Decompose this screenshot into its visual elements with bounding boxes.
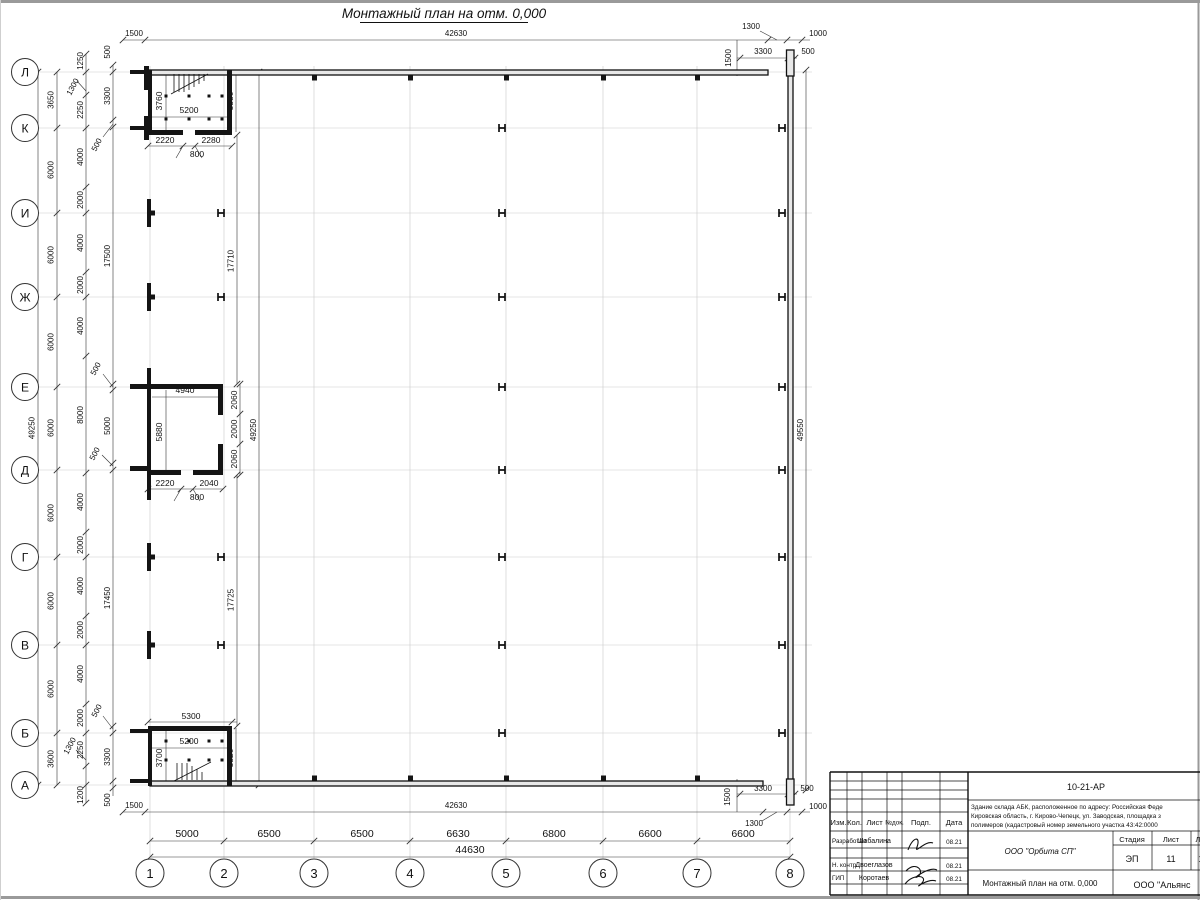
dim-label: 17710	[227, 249, 236, 272]
dim-label: 500	[103, 793, 112, 807]
dim-label: 6500	[350, 828, 374, 840]
dim-label: 2000	[229, 419, 239, 438]
page-title: Монтажный план на отм. 0,000	[342, 6, 547, 21]
sheet-title: Монтажный план на отм. 0,000	[342, 6, 547, 23]
axis-label: 4	[406, 866, 413, 881]
dim-label: 4000	[76, 577, 85, 595]
tb-date: 08.21	[946, 839, 962, 846]
dim-label: 1500	[724, 49, 733, 67]
dim-label: 1200	[76, 786, 85, 804]
axis-label: 6	[599, 866, 606, 881]
tb-role: Н. контр.	[832, 862, 858, 869]
dim-label: 4000	[76, 234, 85, 252]
dim-label: 6000	[47, 419, 56, 437]
dim-label: 2060	[229, 449, 239, 468]
axis-col: 5	[492, 859, 520, 887]
dim-label: 800	[190, 492, 204, 502]
axis-row: В	[12, 632, 39, 659]
axis-label: Л	[21, 66, 29, 80]
axis-row: А	[12, 772, 39, 799]
dim-label: 3300	[103, 748, 112, 766]
axis-row: Д	[12, 457, 39, 484]
dim-label: 17725	[227, 588, 236, 611]
dim-label: 1000	[809, 802, 827, 811]
tb-col-header: Изм.	[830, 818, 846, 827]
axis-label: 7	[693, 866, 700, 881]
tb-col-header: №док.	[885, 820, 904, 827]
dim-label: 3700	[154, 748, 164, 767]
dim-label: 2000	[76, 536, 85, 554]
wall-right	[788, 70, 793, 781]
axis-col: 7	[683, 859, 711, 887]
stage-header: Стадия	[1119, 835, 1145, 844]
dim-label: 2000	[76, 709, 85, 727]
dim-label: 5000	[103, 417, 112, 435]
dim-label: 6000	[47, 333, 56, 351]
dim-label: 500	[800, 784, 814, 793]
dim-label: 17450	[103, 586, 112, 609]
axis-col: 2	[210, 859, 238, 887]
axis-label: 2	[220, 866, 227, 881]
dim-label: 1500	[125, 801, 143, 810]
axis-label: А	[21, 779, 29, 793]
dim-label: 3300	[754, 47, 772, 56]
object-description-line: полимеров (кадастровый номер земельного …	[971, 821, 1158, 829]
object-description-line: Кировская область, г. Кирово-Чепецк, ул.…	[971, 812, 1161, 820]
wall-top	[145, 70, 768, 75]
axis-col: 4	[396, 859, 424, 887]
drawing-sheet: Монтажный план на отм. 0,000	[0, 0, 1200, 900]
axis-label: Ж	[19, 291, 30, 305]
dim-label: 17500	[103, 244, 112, 267]
wall-bottom	[150, 781, 763, 786]
sheet-header: Лист	[1163, 835, 1180, 844]
dim-label: 3760	[154, 91, 164, 110]
axis-col: 3	[300, 859, 328, 887]
dim-label: 44630	[455, 844, 484, 856]
dim-label: 4000	[76, 493, 85, 511]
axis-label: 5	[502, 866, 509, 881]
dim-label: 1300	[742, 22, 760, 31]
dim-label: 3650	[47, 91, 56, 109]
axis-label: 3	[310, 866, 317, 881]
dim-label: 6500	[257, 828, 281, 840]
dim-label: 6000	[47, 161, 56, 179]
dim-label: 1250	[76, 52, 85, 70]
dim-label: 6000	[47, 592, 56, 610]
corner-column-bottom-right	[787, 779, 795, 805]
dim-label: 6800	[542, 828, 566, 840]
axis-row: Г	[12, 544, 39, 571]
dim-label: 2000	[76, 621, 85, 639]
dim-label: 3300	[103, 87, 112, 105]
dim-label: 1000	[809, 29, 827, 38]
dim-label: 1300	[745, 819, 763, 828]
dim-label: 6600	[638, 828, 662, 840]
dim-label: 3600	[47, 750, 56, 768]
tb-col-header: Лист	[866, 818, 883, 827]
axis-label: В	[21, 639, 29, 653]
dim-label: 5200	[180, 105, 199, 115]
dim-label: 5880	[154, 422, 164, 441]
drawing-title: Монтажный план на отм. 0,000	[983, 879, 1098, 888]
dim-label: 6630	[446, 828, 470, 840]
dim-label: 4000	[76, 665, 85, 683]
tb-name: Коротаев	[859, 875, 890, 882]
dim-label: 8000	[76, 406, 85, 424]
dim-label: 42630	[445, 29, 468, 38]
plan-canvas: Монтажный план на отм. 0,000	[0, 0, 1200, 900]
dim-label: 2000	[76, 191, 85, 209]
stage-value: ЭП	[1126, 854, 1139, 864]
axis-row: К	[12, 115, 39, 142]
axis-label: 1	[146, 866, 153, 881]
dim-label: 49550	[796, 418, 805, 441]
tb-date: 08.21	[946, 876, 962, 883]
tb-date: 08.21	[946, 863, 962, 870]
dim-label: 500	[103, 45, 112, 59]
dim-label: 5300	[182, 711, 201, 721]
dim-label: 42630	[445, 801, 468, 810]
dim-label: 1500	[125, 29, 143, 38]
dim-label: 5000	[175, 828, 199, 840]
dim-label: 2250	[76, 741, 85, 759]
tb-role: ГИП	[832, 875, 845, 882]
axis-col: 8	[776, 859, 804, 887]
axis-row: Е	[12, 374, 39, 401]
axis-col: 6	[589, 859, 617, 887]
dim-label: 6000	[47, 504, 56, 522]
axis-label: 8	[786, 866, 793, 881]
tb-name: Шабалина	[857, 837, 891, 845]
dim-label: 2250	[76, 101, 85, 119]
dim-label: 800	[190, 149, 204, 159]
sheet-value: 11	[1166, 854, 1175, 864]
axis-label: Е	[21, 381, 29, 395]
axis-label: И	[21, 207, 30, 221]
dim-label: 2220	[156, 135, 175, 145]
dim-label: 1500	[723, 788, 732, 806]
contractor-name: ООО "Альянс	[1134, 880, 1191, 890]
axis-col: 1	[136, 859, 164, 887]
dim-label: 2220	[156, 478, 175, 488]
doc-number: 10-21-АР	[1067, 782, 1105, 792]
axis-label: Д	[21, 464, 29, 478]
object-description-line: Здание склада АБК, расположенное по адре…	[971, 803, 1163, 811]
axis-row: И	[12, 200, 39, 227]
dim-label: 6000	[47, 246, 56, 264]
dim-label: 4000	[76, 148, 85, 166]
dim-label: 2000	[76, 276, 85, 294]
dim-label: 49250	[249, 418, 258, 441]
tb-col-header: Кол.	[847, 818, 862, 827]
axis-label: Г	[22, 551, 29, 565]
org-name: ООО "Орбита СП"	[1004, 847, 1076, 856]
dim-label: 500	[801, 47, 815, 56]
tb-col-header: Подп.	[911, 818, 931, 827]
corner-column-top-right	[787, 50, 795, 76]
axis-row: Л	[12, 59, 39, 86]
axis-label: Б	[21, 727, 29, 741]
tb-col-header: Дата	[946, 818, 963, 827]
axis-label: К	[22, 122, 29, 136]
dim-label: 6600	[731, 828, 755, 840]
axis-row: Б	[12, 720, 39, 747]
axis-row: Ж	[12, 284, 39, 311]
dim-label: 49250	[28, 416, 37, 439]
dim-label: 2060	[229, 390, 239, 409]
dim-label: 6000	[47, 680, 56, 698]
dim-label: 2040	[200, 478, 219, 488]
dim-label: 2280	[202, 135, 221, 145]
sheets-header: Ли	[1195, 835, 1200, 844]
tb-name: Двоеглазов	[855, 862, 892, 869]
dim-label: 4000	[76, 317, 85, 335]
